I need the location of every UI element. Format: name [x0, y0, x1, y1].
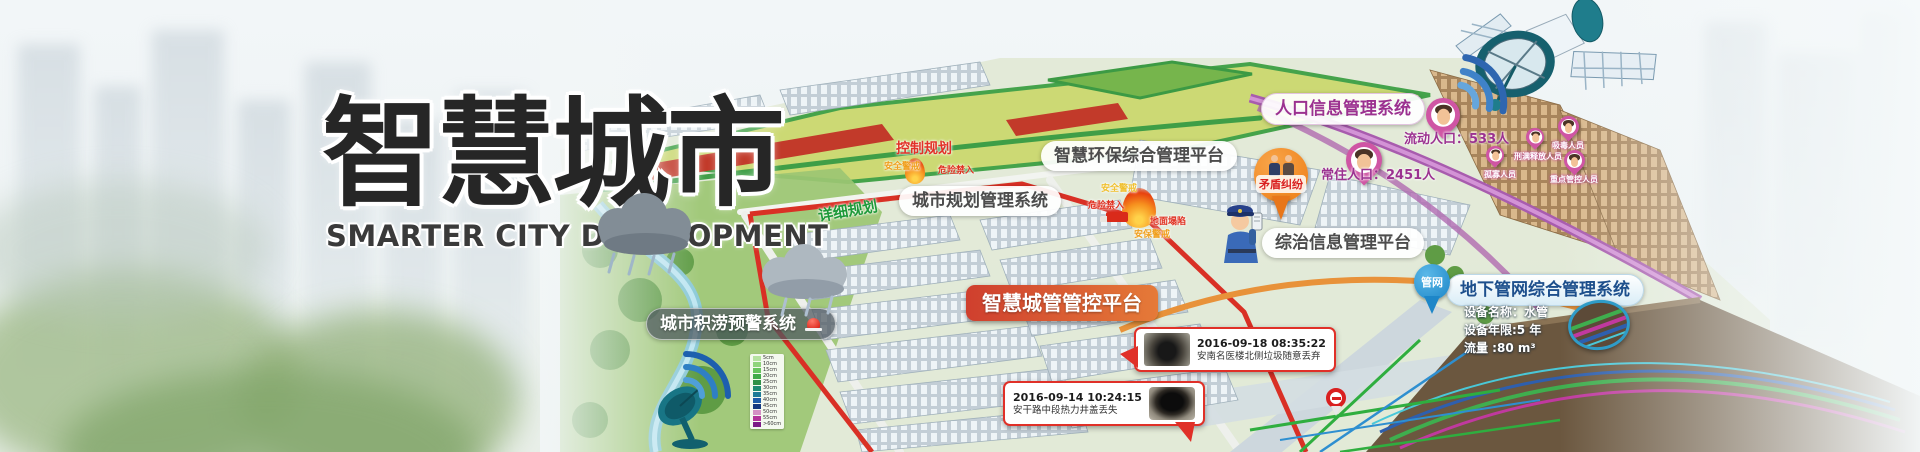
note-control-planning: 控制规划 — [896, 142, 952, 156]
event-callout-manhole[interactable]: 2016-09-14 10:24:15 安干路中段热力井盖丢失 — [1003, 381, 1205, 426]
legend-swatch — [753, 356, 761, 361]
satellite-signal-icon — [1453, 45, 1525, 117]
legend-label: >60cm — [763, 422, 781, 427]
person-tag-drug: 吸毒人员 — [1552, 142, 1584, 150]
legend-swatch — [753, 374, 761, 379]
person-tag-key-control: 重点管控人员 — [1550, 176, 1598, 184]
legend-swatch — [753, 416, 761, 421]
person-tag-released: 刑满释放人员 — [1514, 153, 1562, 161]
event-description: 安南名医楼北侧垃圾随意丢弃 — [1197, 351, 1326, 363]
event-time: 2016-09-18 08:35:22 — [1197, 336, 1326, 351]
event-callout-garbage[interactable]: 2016-09-18 08:35:22 安南名医楼北侧垃圾随意丢弃 — [1134, 327, 1336, 372]
warning-ground-collapse: 地面塌陷 — [1150, 218, 1186, 227]
floating-population-pin[interactable] — [1426, 98, 1460, 132]
label-governance-system[interactable]: 综治信息管理平台 — [1262, 228, 1424, 258]
person-figure — [1269, 155, 1280, 176]
warning-safety-1: 安全警戒 — [884, 163, 920, 172]
legend-swatch — [753, 404, 761, 409]
legend-swatch — [753, 398, 761, 403]
fire-truck-icon — [1106, 212, 1128, 222]
legend-swatch — [753, 422, 761, 427]
smart-city-banner: 智慧城市 SMARTER CITY DEVELOPMENT 智慧环保综合管理平台… — [0, 0, 1920, 452]
label-environment-system[interactable]: 智慧环保综合管理平台 — [1041, 141, 1237, 171]
person-pin-widowed[interactable] — [1486, 146, 1504, 164]
dispute-tag: 矛盾纠纷 — [1256, 175, 1306, 193]
pipeline-device-age: 设备年限:5 年 — [1464, 321, 1541, 339]
person-figure — [1283, 155, 1294, 176]
warning-danger-1: 危险禁入 — [938, 167, 974, 176]
police-officer-figure — [1216, 199, 1266, 267]
legend-swatch — [753, 362, 761, 367]
manhole-photo — [1149, 387, 1195, 420]
legend-row: >60cm — [753, 422, 781, 427]
warning-danger-2: 危险禁入 — [1088, 202, 1124, 211]
pipeline-pin[interactable]: 管网 — [1414, 264, 1450, 314]
floating-population-stat: 流动人口：533人 — [1404, 133, 1509, 146]
pipeline-pin-label: 管网 — [1414, 264, 1450, 300]
person-pin-released[interactable] — [1526, 128, 1544, 146]
person-pin-drug[interactable] — [1558, 116, 1579, 137]
flood-legend: 5cm10cm15cm20cm25cm30cm35cm40cm45cm50cm5… — [750, 354, 784, 429]
no-entry-sign-pin — [1326, 388, 1346, 416]
event-description: 安干路中段热力井盖丢失 — [1013, 405, 1142, 417]
resident-population-stat: 常住人口：2451人 — [1321, 169, 1435, 182]
label-urban-planning-system[interactable]: 城市规划管理系统 — [899, 186, 1061, 216]
legend-swatch — [753, 380, 761, 385]
warning-safety-2: 安全警戒 — [1101, 185, 1137, 194]
page-title: 智慧城市 — [322, 58, 782, 229]
garbage-photo — [1144, 333, 1190, 366]
legend-swatch — [753, 392, 761, 397]
legend-swatch — [753, 410, 761, 415]
person-pin-key-control[interactable] — [1564, 150, 1585, 171]
label-city-management-system[interactable]: 智慧城管管控平台 — [966, 285, 1158, 321]
pipeline-device-name: 设备名称：水管 — [1464, 303, 1548, 321]
label-population-system[interactable]: 人口信息管理系统 — [1261, 93, 1425, 125]
legend-swatch — [753, 386, 761, 391]
pipeline-flow: 流量 :80 m³ — [1464, 339, 1536, 357]
legend-swatch — [753, 368, 761, 373]
rain-cloud-icon-light — [752, 241, 862, 321]
radar-signal-icon — [682, 342, 740, 400]
rain-cloud-icon — [588, 190, 708, 278]
warning-security: 安保警戒 — [1134, 231, 1170, 240]
event-time: 2016-09-14 10:24:15 — [1013, 390, 1142, 405]
person-tag-widowed: 孤寡人员 — [1484, 171, 1516, 179]
